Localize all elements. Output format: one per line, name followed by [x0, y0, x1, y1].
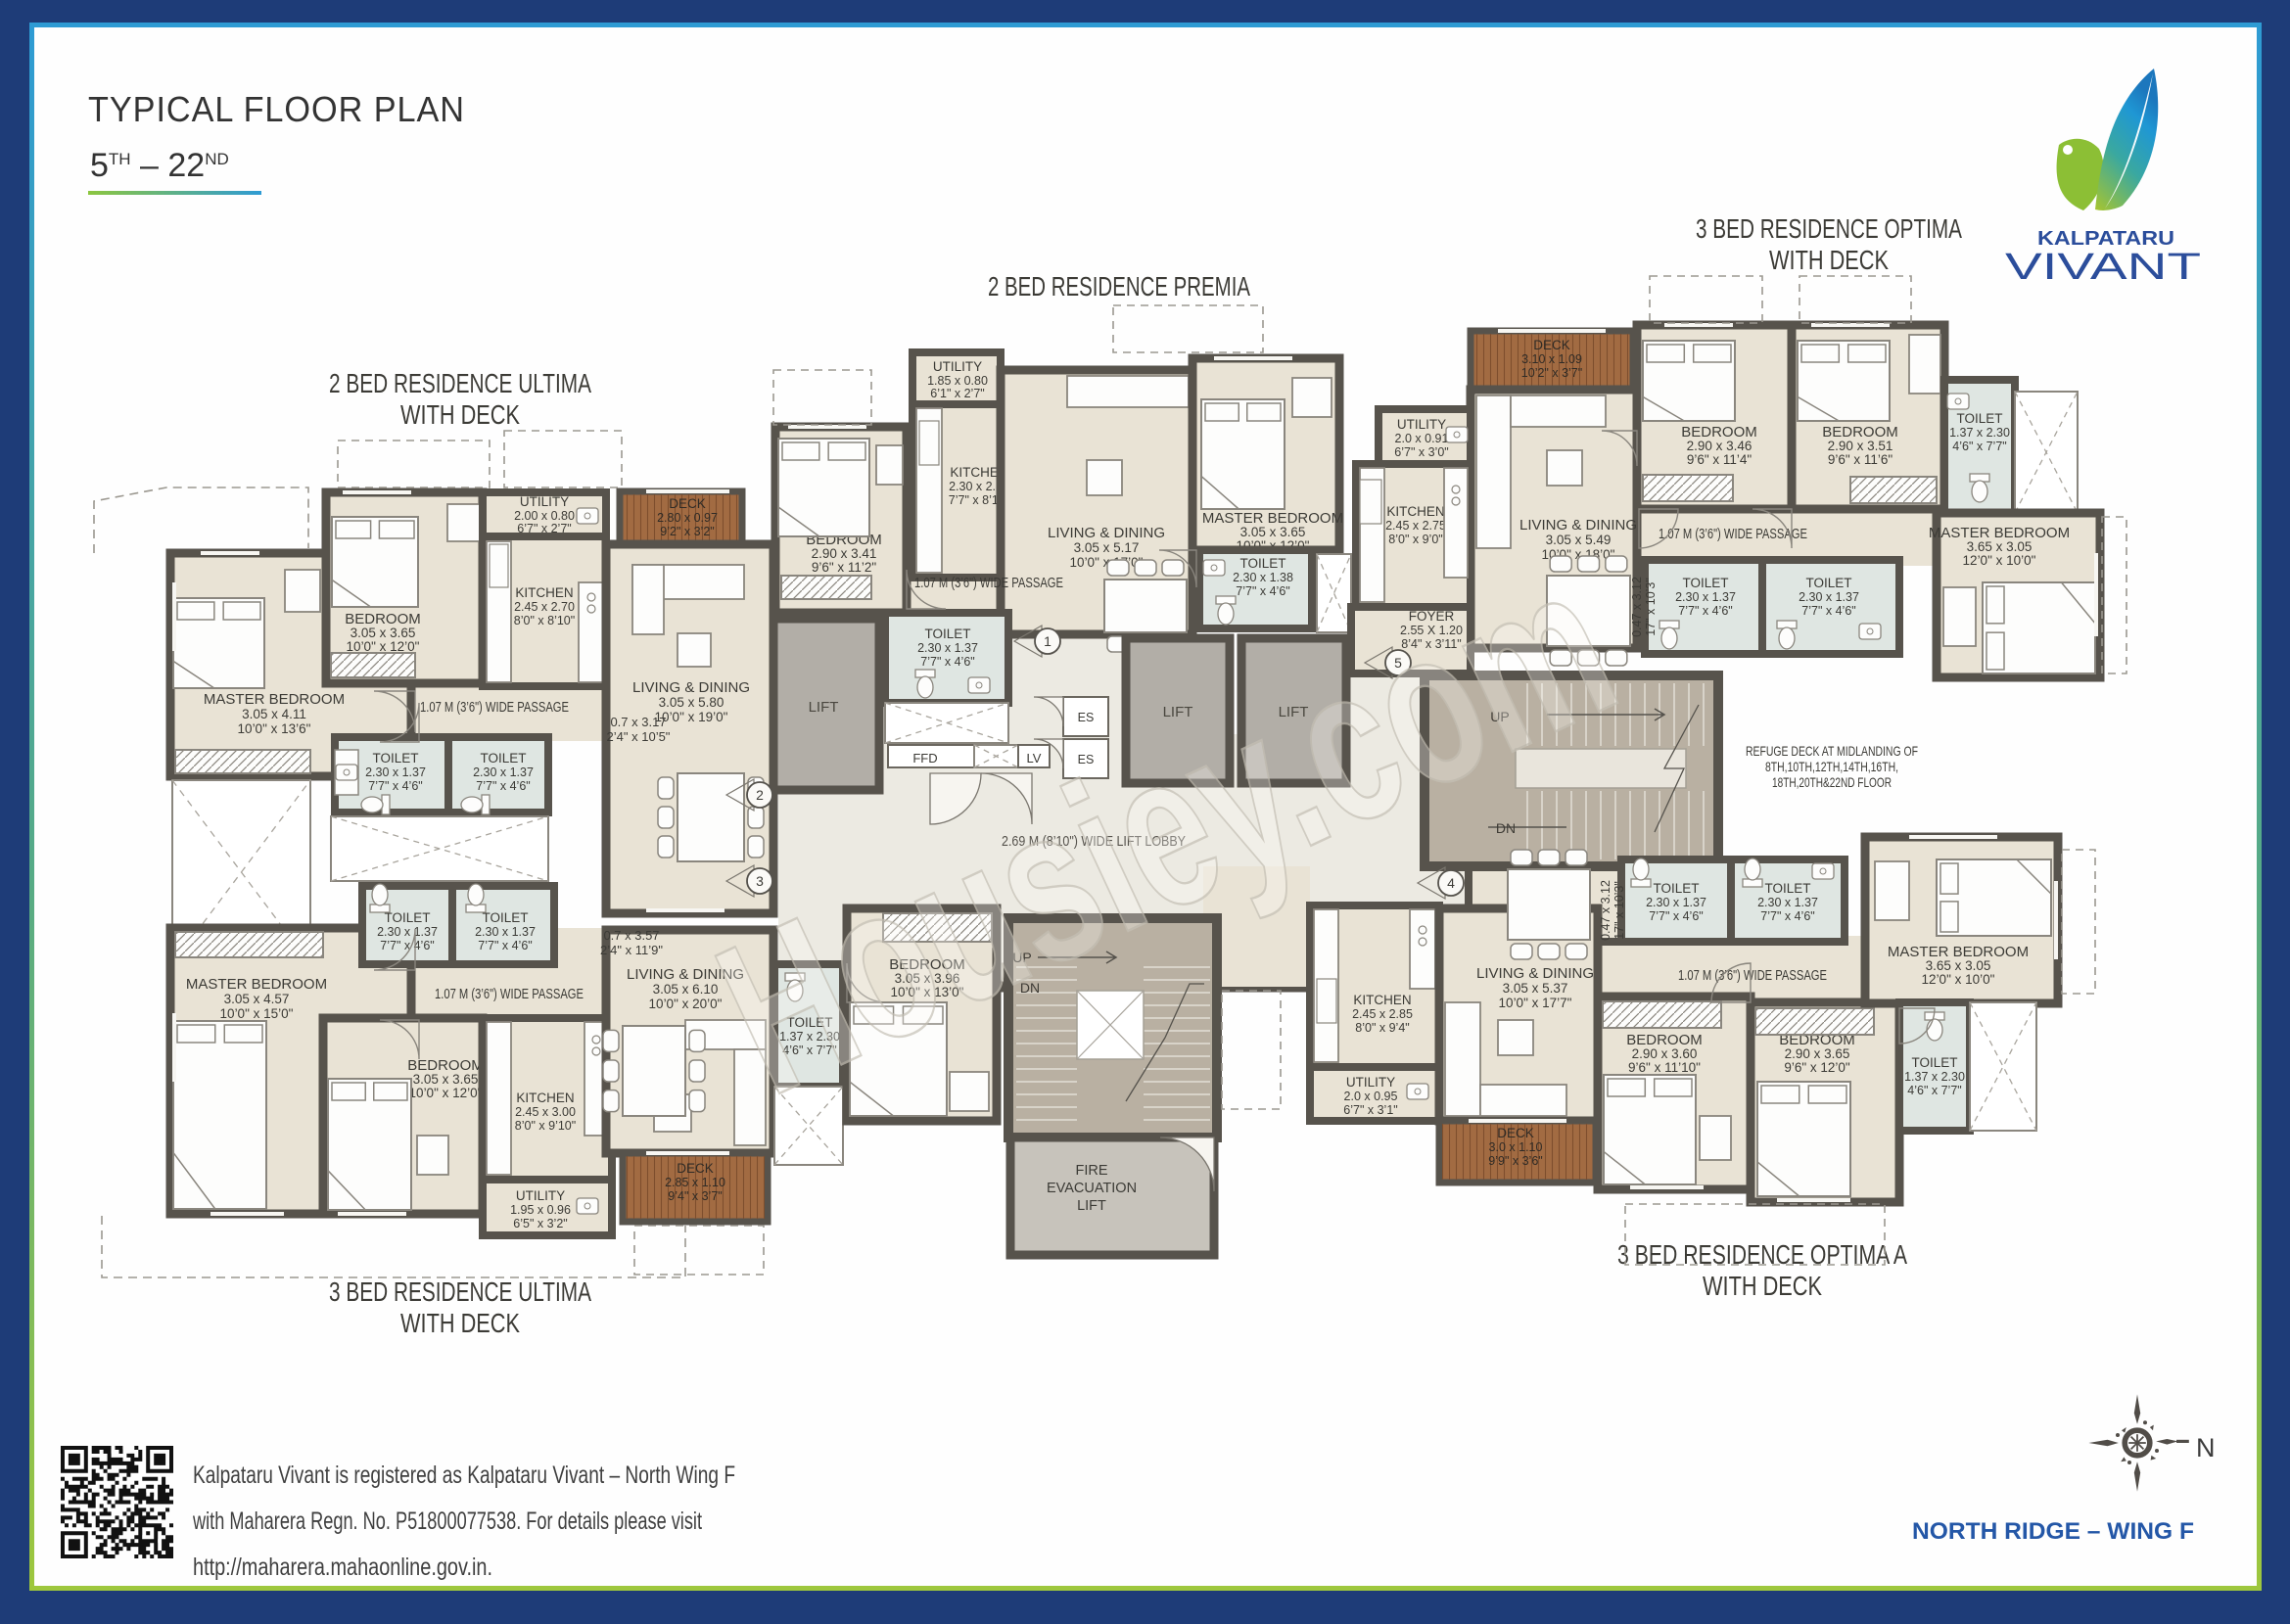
svg-text:0.7 x 3.57: 0.7 x 3.57: [603, 928, 659, 943]
svg-text:MASTER BEDROOM: MASTER BEDROOM: [204, 691, 345, 708]
svg-text:2.0 x 0.95: 2.0 x 0.95: [1344, 1090, 1398, 1103]
svg-text:TOILET: TOILET: [1653, 881, 1699, 896]
svg-text:10’0" x 13’6": 10’0" x 13’6": [238, 721, 311, 736]
svg-text:TOILET: TOILET: [924, 626, 970, 641]
svg-text:3.05 x 5.49: 3.05 x 5.49: [1546, 533, 1612, 547]
svg-text:9’2" x 3’2": 9’2" x 3’2": [660, 525, 714, 538]
svg-text:with Maharera Regn. No. P51800: with Maharera Regn. No. P51800077538. Fo…: [192, 1508, 702, 1535]
svg-text:9’6" x 11’10": 9’6" x 11’10": [1628, 1060, 1701, 1075]
svg-text:2.30 x 1.37: 2.30 x 1.37: [1675, 590, 1736, 604]
svg-text:7’7" x 4’6": 7’7" x 4’6": [1236, 584, 1289, 598]
svg-text:WITH DECK: WITH DECK: [400, 399, 520, 430]
svg-text:UTILITY: UTILITY: [516, 1188, 565, 1203]
svg-text:DECK: DECK: [677, 1161, 714, 1176]
svg-text:2.90 x 3.65: 2.90 x 3.65: [1785, 1046, 1850, 1061]
svg-text:8’0" x 8’10": 8’0" x 8’10": [514, 614, 575, 627]
svg-text:LIVING & DINING: LIVING & DINING: [632, 679, 750, 696]
svg-text:Kalpataru Vivant is registered: Kalpataru Vivant is registered as Kalpat…: [193, 1462, 735, 1489]
svg-text:TOILET: TOILET: [1764, 881, 1810, 896]
svg-text:10’0" x 17’0": 10’0" x 17’0": [1070, 555, 1144, 570]
svg-text:NORTH RIDGE – WING F: NORTH RIDGE – WING F: [1912, 1518, 2194, 1545]
svg-text:2.90 x 3.51: 2.90 x 3.51: [1828, 439, 1893, 453]
svg-text:FIRE: FIRE: [1075, 1163, 1107, 1179]
svg-text:1.37 x 2.30: 1.37 x 2.30: [1904, 1070, 1965, 1084]
svg-text:7’7" x 4’6": 7’7" x 4’6": [1801, 604, 1855, 618]
svg-text:UTILITY: UTILITY: [933, 359, 982, 374]
svg-text:2’4" x 11’9": 2’4" x 11’9": [600, 943, 663, 957]
svg-text:2.30 x 1.38: 2.30 x 1.38: [1233, 571, 1293, 584]
svg-text:6’7" x 3’0": 6’7" x 3’0": [1394, 445, 1448, 459]
svg-text:10’0" x 12’0": 10’0" x 12’0": [347, 639, 420, 654]
svg-text:9’6" x 11’6": 9’6" x 11’6": [1828, 452, 1893, 467]
svg-text:10’0" x 15’0": 10’0" x 15’0": [220, 1006, 294, 1021]
svg-text:6’7" x 3’1": 6’7" x 3’1": [1343, 1103, 1397, 1117]
svg-text:2.30 x 1.37: 2.30 x 1.37: [1757, 896, 1818, 909]
svg-text:4’6" x 7’7": 4’6" x 7’7": [1907, 1084, 1961, 1097]
svg-text:EVACUATION: EVACUATION: [1047, 1181, 1137, 1196]
svg-text:7’7" x 4’6": 7’7" x 4’6": [368, 779, 422, 793]
svg-text:6’5" x 3’2": 6’5" x 3’2": [513, 1217, 567, 1230]
svg-text:7’7" x 4’6": 7’7" x 4’6": [1678, 604, 1732, 618]
svg-text:1.07 M (3’6") WIDE PASSAGE: 1.07 M (3’6") WIDE PASSAGE: [1678, 968, 1827, 984]
svg-text:TYPICAL FLOOR PLAN: TYPICAL FLOOR PLAN: [88, 89, 465, 129]
svg-text:2.30 x 1.37: 2.30 x 1.37: [1799, 590, 1859, 604]
svg-text:3.05 x 6.10: 3.05 x 6.10: [653, 982, 719, 997]
svg-text:TOILET: TOILET: [482, 910, 528, 925]
svg-text:10’2" x 3’7": 10’2" x 3’7": [1521, 366, 1582, 380]
svg-text:18TH,20TH&22ND FLOOR: 18TH,20TH&22ND FLOOR: [1772, 774, 1892, 790]
svg-text:2 BED RESIDENCE ULTIMA: 2 BED RESIDENCE ULTIMA: [329, 368, 591, 398]
svg-text:2.45 x 2.75: 2.45 x 2.75: [1385, 519, 1446, 533]
svg-text:2.30 x 1.37: 2.30 x 1.37: [475, 925, 536, 939]
svg-text:LIVING & DINING: LIVING & DINING: [1476, 965, 1594, 982]
svg-text:1: 1: [1044, 633, 1052, 649]
svg-text:TOILET: TOILET: [1805, 576, 1851, 590]
svg-text:12’0" x 10’0": 12’0" x 10’0": [1963, 553, 2036, 568]
svg-text:9’4" x 3’7": 9’4" x 3’7": [668, 1189, 722, 1203]
svg-text:10’0" x 20’0": 10’0" x 20’0": [649, 997, 723, 1011]
svg-text:TOILET: TOILET: [480, 751, 526, 766]
svg-text:N: N: [2196, 1433, 2216, 1462]
svg-text:4: 4: [1447, 875, 1455, 891]
svg-text:17" x 10’3": 17" x 10’3": [1612, 881, 1626, 940]
svg-text:2.85 x 1.10: 2.85 x 1.10: [665, 1176, 725, 1189]
svg-text:17" x 10’3": 17" x 10’3": [1644, 578, 1658, 636]
svg-text:TOILET: TOILET: [1239, 556, 1285, 571]
svg-text:DECK: DECK: [1497, 1126, 1534, 1140]
svg-text:3.05 x 4.57: 3.05 x 4.57: [224, 992, 290, 1006]
svg-text:8’0" x 9’4": 8’0" x 9’4": [1355, 1021, 1409, 1035]
svg-text:3.05 x 5.37: 3.05 x 5.37: [1503, 981, 1568, 996]
svg-text:3.65 x 3.05: 3.65 x 3.05: [1967, 539, 2033, 554]
svg-text:4’6" x 7’7": 4’6" x 7’7": [1952, 440, 2006, 453]
svg-text:7’7" x 4’6": 7’7" x 4’6": [380, 939, 434, 952]
svg-text:3.05 x 5.17: 3.05 x 5.17: [1074, 540, 1140, 555]
svg-text:1.07 M (3’6") WIDE PASSAGE: 1.07 M (3’6") WIDE PASSAGE: [435, 987, 584, 1002]
svg-text:0.47 x 3.12: 0.47 x 3.12: [1630, 577, 1644, 637]
svg-text:2.80 x 0.97: 2.80 x 0.97: [657, 511, 718, 525]
svg-text:2.45 x 3.00: 2.45 x 3.00: [515, 1105, 576, 1119]
svg-text:2.30 x 1.37: 2.30 x 1.37: [917, 641, 978, 655]
svg-text:TOILET: TOILET: [372, 751, 418, 766]
svg-text:2.30 x 1.37: 2.30 x 1.37: [1646, 896, 1706, 909]
svg-text:3.65 x 3.05: 3.65 x 3.05: [1926, 958, 1991, 973]
svg-text:2: 2: [756, 787, 764, 803]
svg-text:3.05 x 5.80: 3.05 x 5.80: [659, 695, 724, 710]
svg-text:FFD: FFD: [912, 751, 937, 766]
svg-text:7’7" x 4’6": 7’7" x 4’6": [920, 655, 974, 669]
svg-text:DECK: DECK: [1533, 338, 1570, 352]
svg-text:2.30 x 1.37: 2.30 x 1.37: [377, 925, 438, 939]
svg-text:3.05 x 3.65: 3.05 x 3.65: [1240, 525, 1306, 539]
svg-text:7’7" x 4’6": 7’7" x 4’6": [478, 939, 532, 952]
svg-text:KITCHEN: KITCHEN: [515, 585, 573, 600]
svg-text:ES: ES: [1078, 711, 1095, 724]
svg-text:0.7 x 3.17: 0.7 x 3.17: [610, 715, 666, 729]
svg-text:9’6" x 12’0": 9’6" x 12’0": [1784, 1060, 1850, 1075]
svg-text:KITCHEN: KITCHEN: [1353, 993, 1411, 1007]
svg-text:3.05 x 3.65: 3.05 x 3.65: [413, 1072, 479, 1087]
svg-text:6’1" x 2’7": 6’1" x 2’7": [930, 387, 984, 400]
svg-text:8’0" x 9’0": 8’0" x 9’0": [1388, 533, 1442, 546]
svg-text:9’6" x 11’4": 9’6" x 11’4": [1687, 452, 1753, 467]
svg-text:WITH DECK: WITH DECK: [1769, 245, 1889, 275]
svg-text:TOILET: TOILET: [1911, 1055, 1957, 1070]
svg-text:2.30 x 1.37: 2.30 x 1.37: [365, 766, 426, 779]
svg-text:WITH DECK: WITH DECK: [1703, 1271, 1822, 1301]
svg-text:WITH DECK: WITH DECK: [400, 1308, 520, 1338]
svg-text:10’0" x 12’0": 10’0" x 12’0": [409, 1086, 483, 1100]
svg-text:2.0 x 0.91: 2.0 x 0.91: [1395, 432, 1449, 445]
svg-text:LIVING & DINING: LIVING & DINING: [1048, 525, 1165, 541]
svg-text:7’7" x 4’6": 7’7" x 4’6": [476, 779, 530, 793]
svg-text:3.0 x 1.10: 3.0 x 1.10: [1489, 1140, 1543, 1154]
svg-text:DN: DN: [1496, 820, 1516, 836]
svg-text:8’0" x 9’10": 8’0" x 9’10": [515, 1119, 576, 1133]
svg-text:3.05 x 4.11: 3.05 x 4.11: [242, 707, 306, 721]
svg-text:2.30 x 1.37: 2.30 x 1.37: [473, 766, 534, 779]
svg-text:UTILITY: UTILITY: [1346, 1075, 1395, 1090]
svg-text:2.45 x 2.70: 2.45 x 2.70: [514, 600, 575, 614]
svg-text:REFUGE DECK AT MIDLANDING OF: REFUGE DECK AT MIDLANDING OF: [1746, 743, 1918, 759]
svg-text:KITCHEN: KITCHEN: [1386, 504, 1444, 519]
svg-text:3 BED RESIDENCE ULTIMA: 3 BED RESIDENCE ULTIMA: [329, 1276, 591, 1307]
svg-text:2.90 x 3.46: 2.90 x 3.46: [1687, 439, 1753, 453]
svg-text:UTILITY: UTILITY: [520, 494, 569, 509]
svg-text:3 BED RESIDENCE OPTIMA: 3 BED RESIDENCE OPTIMA: [1696, 213, 1962, 244]
svg-text:10’0" x 17’7": 10’0" x 17’7": [1499, 996, 1572, 1010]
svg-text:DECK: DECK: [669, 496, 706, 511]
svg-text:9’9" x 3’6": 9’9" x 3’6": [1488, 1154, 1542, 1168]
svg-text:KITCHEN: KITCHEN: [516, 1090, 574, 1105]
svg-text:9’6" x 11’2": 9’6" x 11’2": [812, 560, 877, 575]
svg-text:2’4" x 10’5": 2’4" x 10’5": [607, 729, 671, 744]
svg-text:LIFT: LIFT: [809, 699, 839, 716]
svg-text:TOILET: TOILET: [1956, 411, 2002, 426]
svg-text:0.47 x 3.12: 0.47 x 3.12: [1599, 880, 1612, 941]
svg-text:1.07 M (3’6") WIDE PASSAGE: 1.07 M (3’6") WIDE PASSAGE: [1659, 527, 1807, 542]
svg-text:1.95 x 0.96: 1.95 x 0.96: [510, 1203, 571, 1217]
svg-text:8TH,10TH,12TH,14TH,16TH,: 8TH,10TH,12TH,14TH,16TH,: [1765, 759, 1898, 774]
svg-text:3.10 x 1.09: 3.10 x 1.09: [1521, 352, 1582, 366]
svg-text:VIVANT: VIVANT: [2005, 247, 2201, 288]
svg-text:2.45 x 2.85: 2.45 x 2.85: [1352, 1007, 1413, 1021]
svg-text:1.07 M (3’6") WIDE PASSAGE: 1.07 M (3’6") WIDE PASSAGE: [420, 700, 569, 716]
svg-text:1.85 x 0.80: 1.85 x 0.80: [927, 374, 988, 388]
svg-text:2.90 x 3.60: 2.90 x 3.60: [1632, 1046, 1698, 1061]
svg-text:1.37 x 2.30: 1.37 x 2.30: [1949, 426, 2010, 440]
svg-text:UTILITY: UTILITY: [1397, 417, 1446, 432]
svg-text:2.90 x 3.41: 2.90 x 3.41: [812, 546, 877, 561]
svg-text:2.00 x 0.80: 2.00 x 0.80: [514, 509, 575, 523]
svg-text:MASTER BEDROOM: MASTER BEDROOM: [186, 976, 327, 993]
svg-text:1.07 M (3’6") WIDE PASSAGE: 1.07 M (3’6") WIDE PASSAGE: [914, 576, 1063, 591]
svg-text:3.05 x 3.65: 3.05 x 3.65: [351, 626, 416, 640]
svg-text:7’7" x 4’6": 7’7" x 4’6": [1649, 909, 1703, 923]
svg-text:LIFT: LIFT: [1077, 1198, 1106, 1214]
svg-text:2 BED RESIDENCE PREMIA: 2 BED RESIDENCE PREMIA: [988, 271, 1250, 302]
svg-text:7’7" x 4’6": 7’7" x 4’6": [1760, 909, 1814, 923]
svg-text:http://maharera.mahaonline.gov: http://maharera.mahaonline.gov.in.: [193, 1554, 492, 1581]
svg-text:12’0" x 10’0": 12’0" x 10’0": [1922, 972, 1995, 987]
svg-text:TOILET: TOILET: [1682, 576, 1728, 590]
svg-text:TOILET: TOILET: [384, 910, 430, 925]
